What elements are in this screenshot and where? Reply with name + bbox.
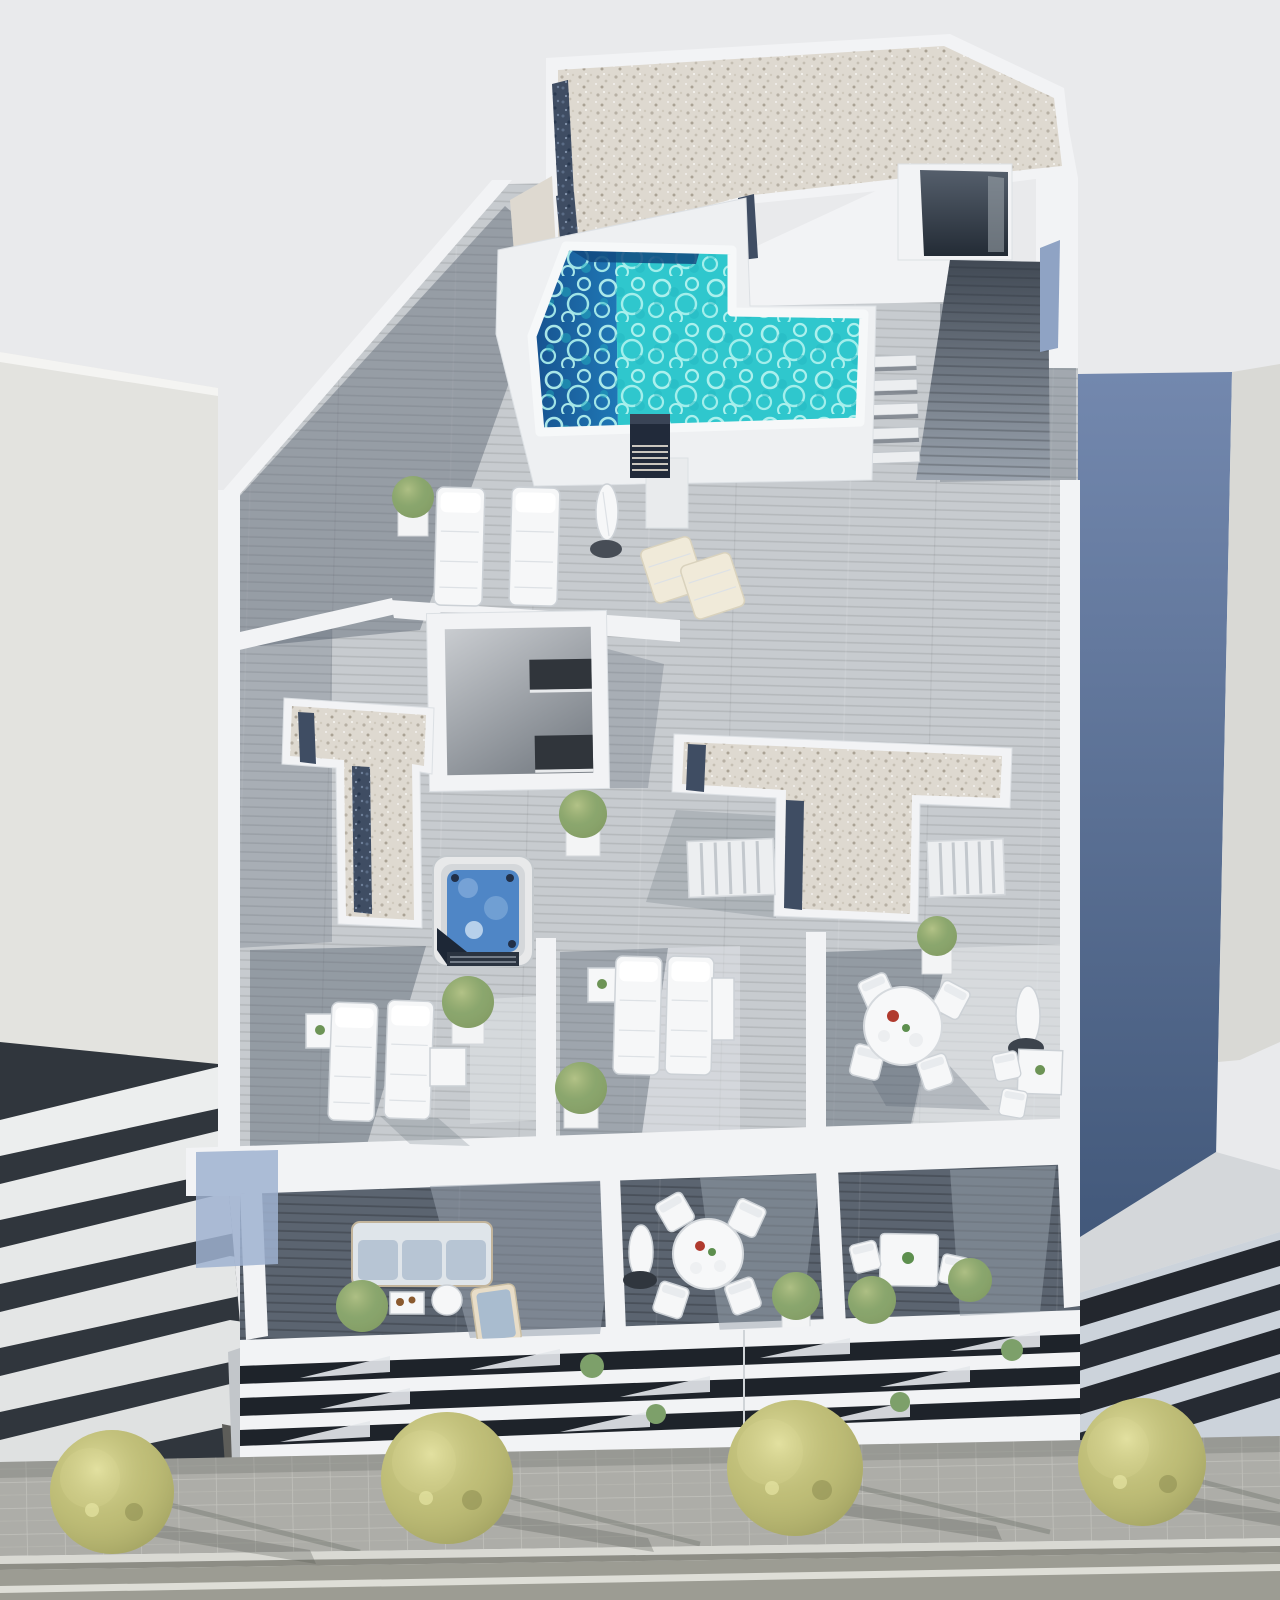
tree-speckle — [812, 1480, 832, 1500]
monitor-drain-texture — [352, 766, 372, 914]
table-plate — [690, 1262, 702, 1274]
table-decor-green — [708, 1248, 716, 1256]
balcony-plant-highlight — [848, 1276, 896, 1324]
sun-lounger — [384, 1000, 434, 1120]
jacuzzi-foam — [458, 878, 478, 898]
deck-shade-left-strip — [238, 628, 332, 948]
plant-foliage-highlight — [917, 916, 957, 956]
table-plant — [315, 1025, 325, 1035]
left-building-roof — [0, 352, 218, 1064]
tree-highlight — [1078, 1398, 1206, 1526]
plant-foliage-highlight — [442, 976, 494, 1028]
jacuzzi-headrest — [451, 874, 459, 882]
balcony-plant-highlight — [948, 1258, 992, 1302]
round-dining-table — [673, 1219, 743, 1289]
sun-lounger — [613, 956, 662, 1075]
monitor-drain-strip — [686, 744, 706, 792]
table-plant — [597, 979, 607, 989]
coffee-table — [390, 1292, 424, 1314]
blue-soffit-wedge — [196, 1150, 278, 1268]
tree-speckle — [1159, 1475, 1177, 1493]
parapet-left-edge — [218, 490, 240, 1160]
table-plate — [878, 1030, 890, 1042]
facade-plant — [646, 1404, 666, 1424]
lightwell-window — [529, 659, 592, 690]
bistro-chair — [998, 1088, 1028, 1119]
bistro-chair — [991, 1050, 1022, 1082]
jacuzzi — [433, 856, 533, 966]
facade-plant — [1001, 1339, 1023, 1361]
louvered-shutter — [687, 839, 775, 898]
table-decor-red — [695, 1241, 705, 1251]
coffee-table-item — [409, 1297, 416, 1304]
folded-parasol — [1016, 986, 1040, 1046]
aerial-render-svg — [0, 0, 1280, 1600]
right-building-shaded-wall — [1078, 372, 1232, 1244]
tree-speckle — [85, 1503, 99, 1517]
lightwell-window — [535, 735, 594, 770]
sofa-cushion — [446, 1240, 486, 1280]
sun-lounger — [328, 1002, 378, 1122]
tree-highlight — [727, 1400, 863, 1536]
tree-highlight — [50, 1430, 174, 1554]
sun-lounger — [434, 487, 485, 606]
jacuzzi-foam — [484, 896, 508, 920]
balcony-plant-highlight — [336, 1280, 388, 1332]
monitor-drain-strip — [784, 800, 804, 910]
sun-lounger — [665, 956, 714, 1075]
tree-speckle — [462, 1490, 482, 1510]
table-plate — [714, 1260, 726, 1272]
tree-speckle — [125, 1503, 143, 1521]
table-decor-red — [887, 1010, 899, 1022]
vent-top-face — [630, 414, 670, 424]
lounge-chair — [470, 1283, 522, 1347]
parasol-base — [590, 540, 622, 558]
facade-plant — [890, 1392, 910, 1412]
blue-wall-fragment — [1040, 240, 1060, 352]
facade-plant — [580, 1354, 604, 1378]
jacuzzi-step-strip — [447, 952, 519, 966]
coffee-table-item — [396, 1298, 404, 1306]
tree-speckle — [419, 1491, 433, 1505]
jacuzzi-headrest — [508, 940, 516, 948]
side-table — [712, 978, 734, 1040]
jacuzzi-water — [447, 870, 519, 952]
divider-wall-left-terrace — [536, 938, 556, 1150]
stair-head-door — [988, 176, 1004, 252]
louvered-shutter — [927, 839, 1005, 898]
jacuzzi-foam — [465, 921, 483, 939]
balcony-plant-highlight — [772, 1272, 820, 1320]
sofa-cushion — [358, 1240, 398, 1280]
jacuzzi-headrest — [506, 874, 514, 882]
tree-speckle — [1113, 1475, 1127, 1489]
round-side-table — [432, 1285, 462, 1315]
divider-wall-right-terrace — [806, 932, 826, 1150]
bistro-set — [1017, 1049, 1063, 1095]
table-decor-green — [902, 1024, 910, 1032]
central-lightwell — [426, 610, 609, 791]
folded-parasol — [596, 484, 618, 540]
sun-lounger — [509, 487, 560, 606]
plant-foliage-highlight — [555, 1062, 607, 1114]
table-plate — [909, 1033, 923, 1047]
sofa-cushion — [402, 1240, 442, 1280]
parasol-base — [623, 1271, 657, 1289]
tree-highlight — [381, 1412, 513, 1544]
plant-foliage-highlight — [392, 476, 434, 518]
plant-foliage-highlight — [559, 790, 607, 838]
monitor-drain-strip — [298, 712, 316, 764]
tree-speckle — [765, 1481, 779, 1495]
render-image — [0, 0, 1280, 1600]
side-table — [430, 1048, 466, 1086]
folded-parasol — [629, 1225, 653, 1279]
